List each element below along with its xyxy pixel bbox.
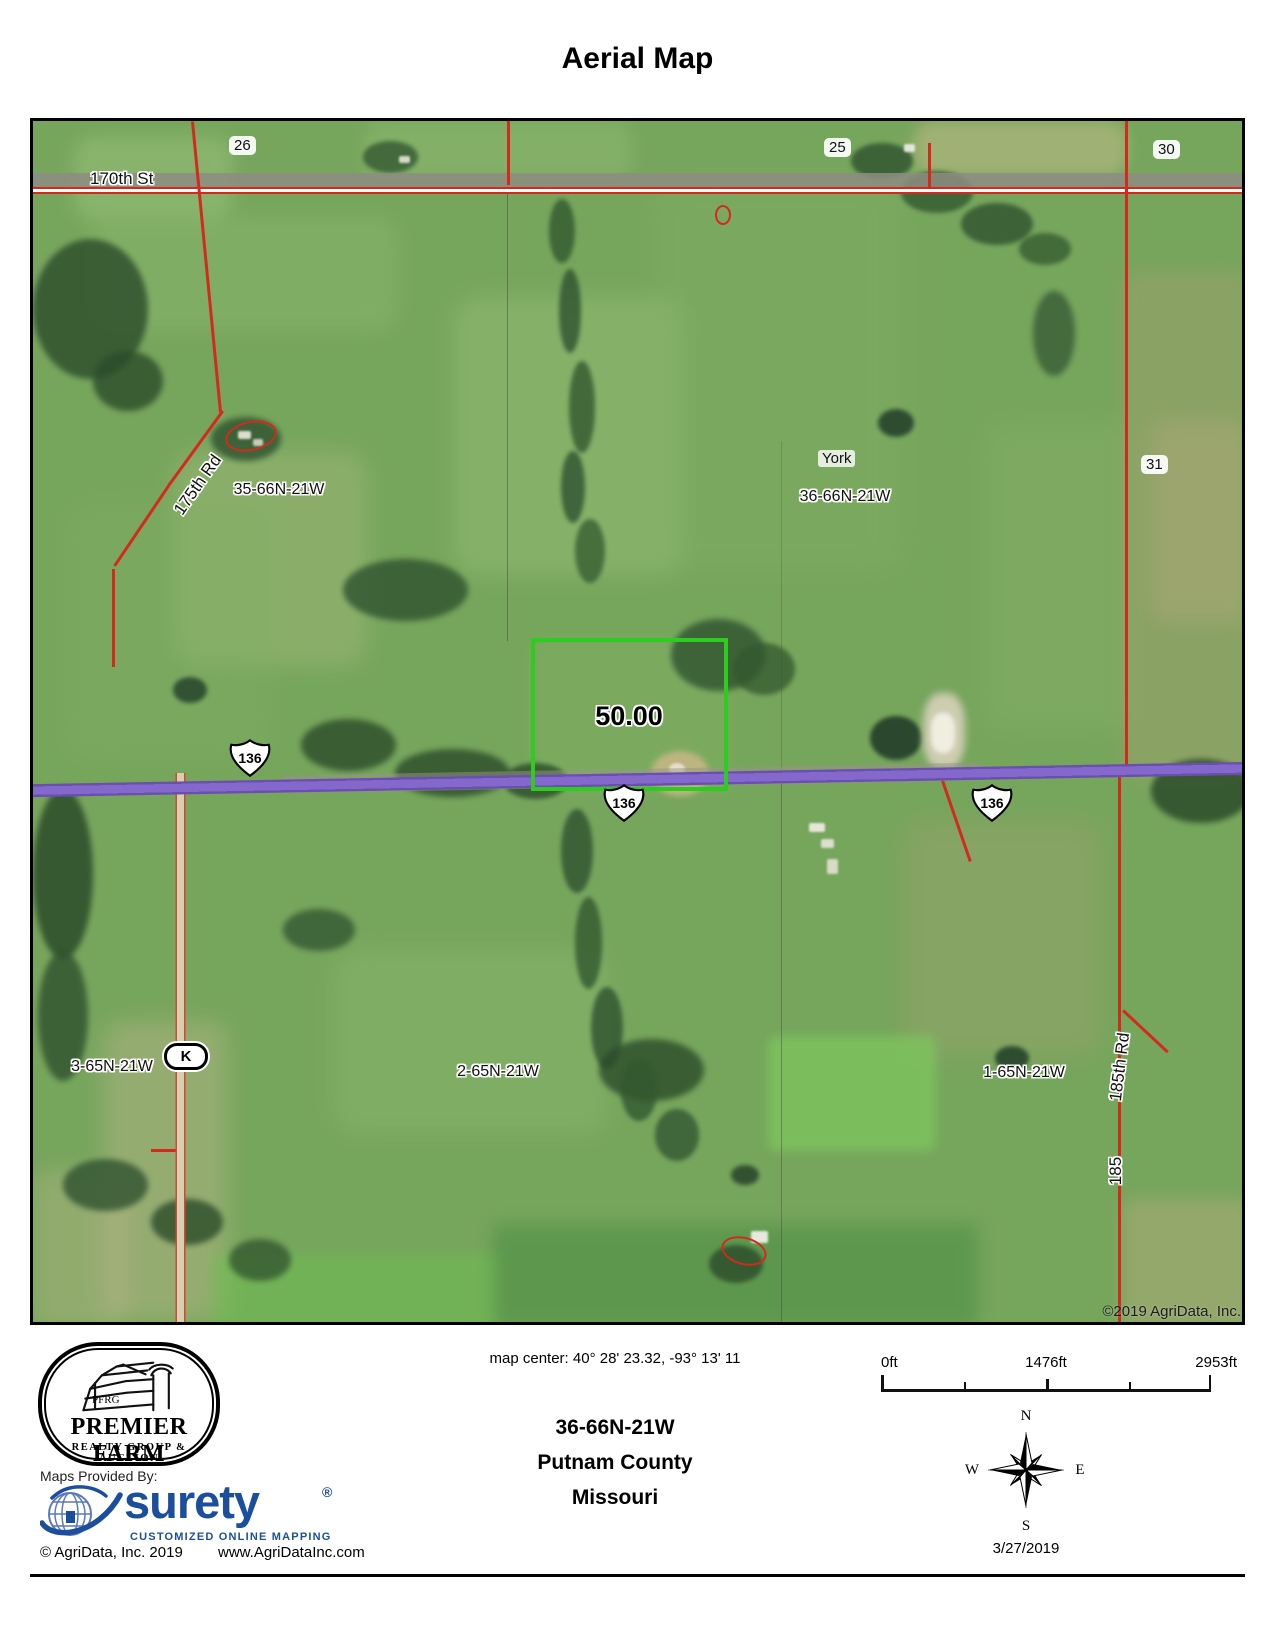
terrain-patch [575,519,605,583]
terrain-patch [63,501,273,761]
compass-west-label: W [962,1462,982,1479]
section-label-3-65: 3-65N-21W [37,1058,187,1076]
road-170th-surface [33,173,1242,187]
road-vertical-e [1125,121,1128,771]
terrain-patch [283,909,355,951]
terrain-patch [733,643,795,695]
terrain-patch [333,949,608,1134]
terrain-patch [569,361,595,453]
scale-end-label: 2953ft [1195,1354,1237,1371]
pfrg-tagline: REALTY GROUP & AUCTION [42,1442,216,1464]
terrain-patch [768,1036,936,1151]
terrain-patch [1151,421,1245,621]
terrain-patch [561,809,593,893]
driveway-stub [151,1149,177,1152]
road-170th-stripe [33,187,1242,194]
terrain-patch [655,1109,699,1161]
terrain-patch [731,1165,759,1185]
us-136-shield: 136 [601,782,647,824]
registered-mark: ® [322,1484,332,1500]
terrain-patch [903,821,1103,1056]
terrain-patch [549,199,575,263]
terrain-patch [621,1059,657,1121]
section-line [507,185,508,641]
township-label-36: 36-66N-21W [765,488,925,506]
footer-state: Missouri [440,1480,790,1515]
compass-rose: N W E S [976,1408,1076,1553]
road-label-170th: 170th St [90,169,153,189]
aerial-map-image: 50.00 136 136 136 K 26 25 30 31 170th St… [30,118,1245,1325]
terrain-patch [827,859,838,874]
terrain-patch [904,144,915,152]
map-center-coordinates: map center: 40° 28' 23.32, -93° 13' 11 [440,1350,790,1367]
scale-start-label: 0ft [881,1354,898,1371]
compass-east-label: E [1070,1462,1090,1479]
compass-north-label: N [976,1408,1076,1425]
terrain-patch [1033,291,1075,376]
road-label-185: 185 [1106,1146,1126,1196]
terrain-patch [983,421,1133,731]
road-label-185th: 185th Rd [1104,1016,1136,1118]
terrain-patch [1019,233,1071,265]
terrain-patch [173,677,207,703]
surety-tagline: CUSTOMIZED ONLINE MAPPING [130,1531,332,1543]
terrain-patch [399,156,410,163]
footer-county: Putnam County [440,1445,790,1480]
section-label-25: 25 [824,138,851,157]
agridata-url[interactable]: www.AgriDataInc.com [218,1544,365,1561]
place-label-york: York [818,450,855,467]
terrain-patch [821,839,834,848]
terrain-patch [961,203,1033,245]
section-label-30: 30 [1153,140,1180,159]
road-vertical-n [507,121,510,185]
terrain-patch [151,1199,223,1245]
svg-text:136: 136 [612,795,635,811]
svg-text:136: 136 [980,795,1003,811]
terrain-patch [229,1239,291,1281]
svg-text:136: 136 [238,750,261,766]
section-line [781,773,782,1325]
page-title: Aerial Map [0,42,1275,76]
barn-icon [66,1352,194,1418]
agridata-copyright: © AgriData, Inc. 2019 [40,1544,183,1561]
terrain-patch [561,451,585,523]
terrain-patch [63,1159,148,1211]
terrain-patch [343,559,468,621]
pfrg-monogram: PFRG [92,1394,120,1406]
terrain-patch [809,823,825,832]
pfrg-logo: PFRG PREMIER FARM REALTY GROUP & AUCTION [38,1342,220,1466]
terrain-patch [931,713,955,753]
section-label-26: 26 [229,136,256,155]
surety-logo-text: surety [124,1478,259,1525]
terrain-patch [301,719,396,771]
map-date: 3/27/2019 [956,1540,1096,1557]
road-175th-seg [112,569,115,667]
terrain-patch [33,789,93,959]
scale-mid-label: 1476ft [996,1354,1096,1371]
us-136-shield: 136 [969,782,1015,824]
footer-divider [30,1574,1245,1577]
scale-bar-line [881,1374,1211,1392]
scale-bar: 0ft 1476ft 2953ft [881,1354,1211,1390]
driveway-loop [715,205,731,225]
section-label-31: 31 [1141,455,1168,474]
compass-star-icon [986,1428,1066,1512]
section-label-2-65: 2-65N-21W [423,1063,573,1081]
township-label-35: 35-66N-21W [199,481,359,499]
terrain-patch [575,897,602,989]
section-label-1-65: 1-65N-21W [949,1064,1099,1082]
map-copyright: ©2019 AgriData, Inc. [933,1303,1241,1320]
terrain-patch [559,269,581,353]
us-136-shield: 136 [227,737,273,779]
compass-south-label: S [976,1518,1076,1535]
terrain-patch [93,351,163,411]
terrain-patch [653,181,903,571]
terrain-patch [878,409,914,437]
parcel-acreage-label: 50.00 [569,701,689,732]
terrain-patch [870,716,922,760]
road-stub-n [928,143,931,187]
surety-globe-icon [40,1485,128,1543]
footer-township: 36-66N-21W [440,1410,790,1445]
terrain-patch [913,121,1128,176]
